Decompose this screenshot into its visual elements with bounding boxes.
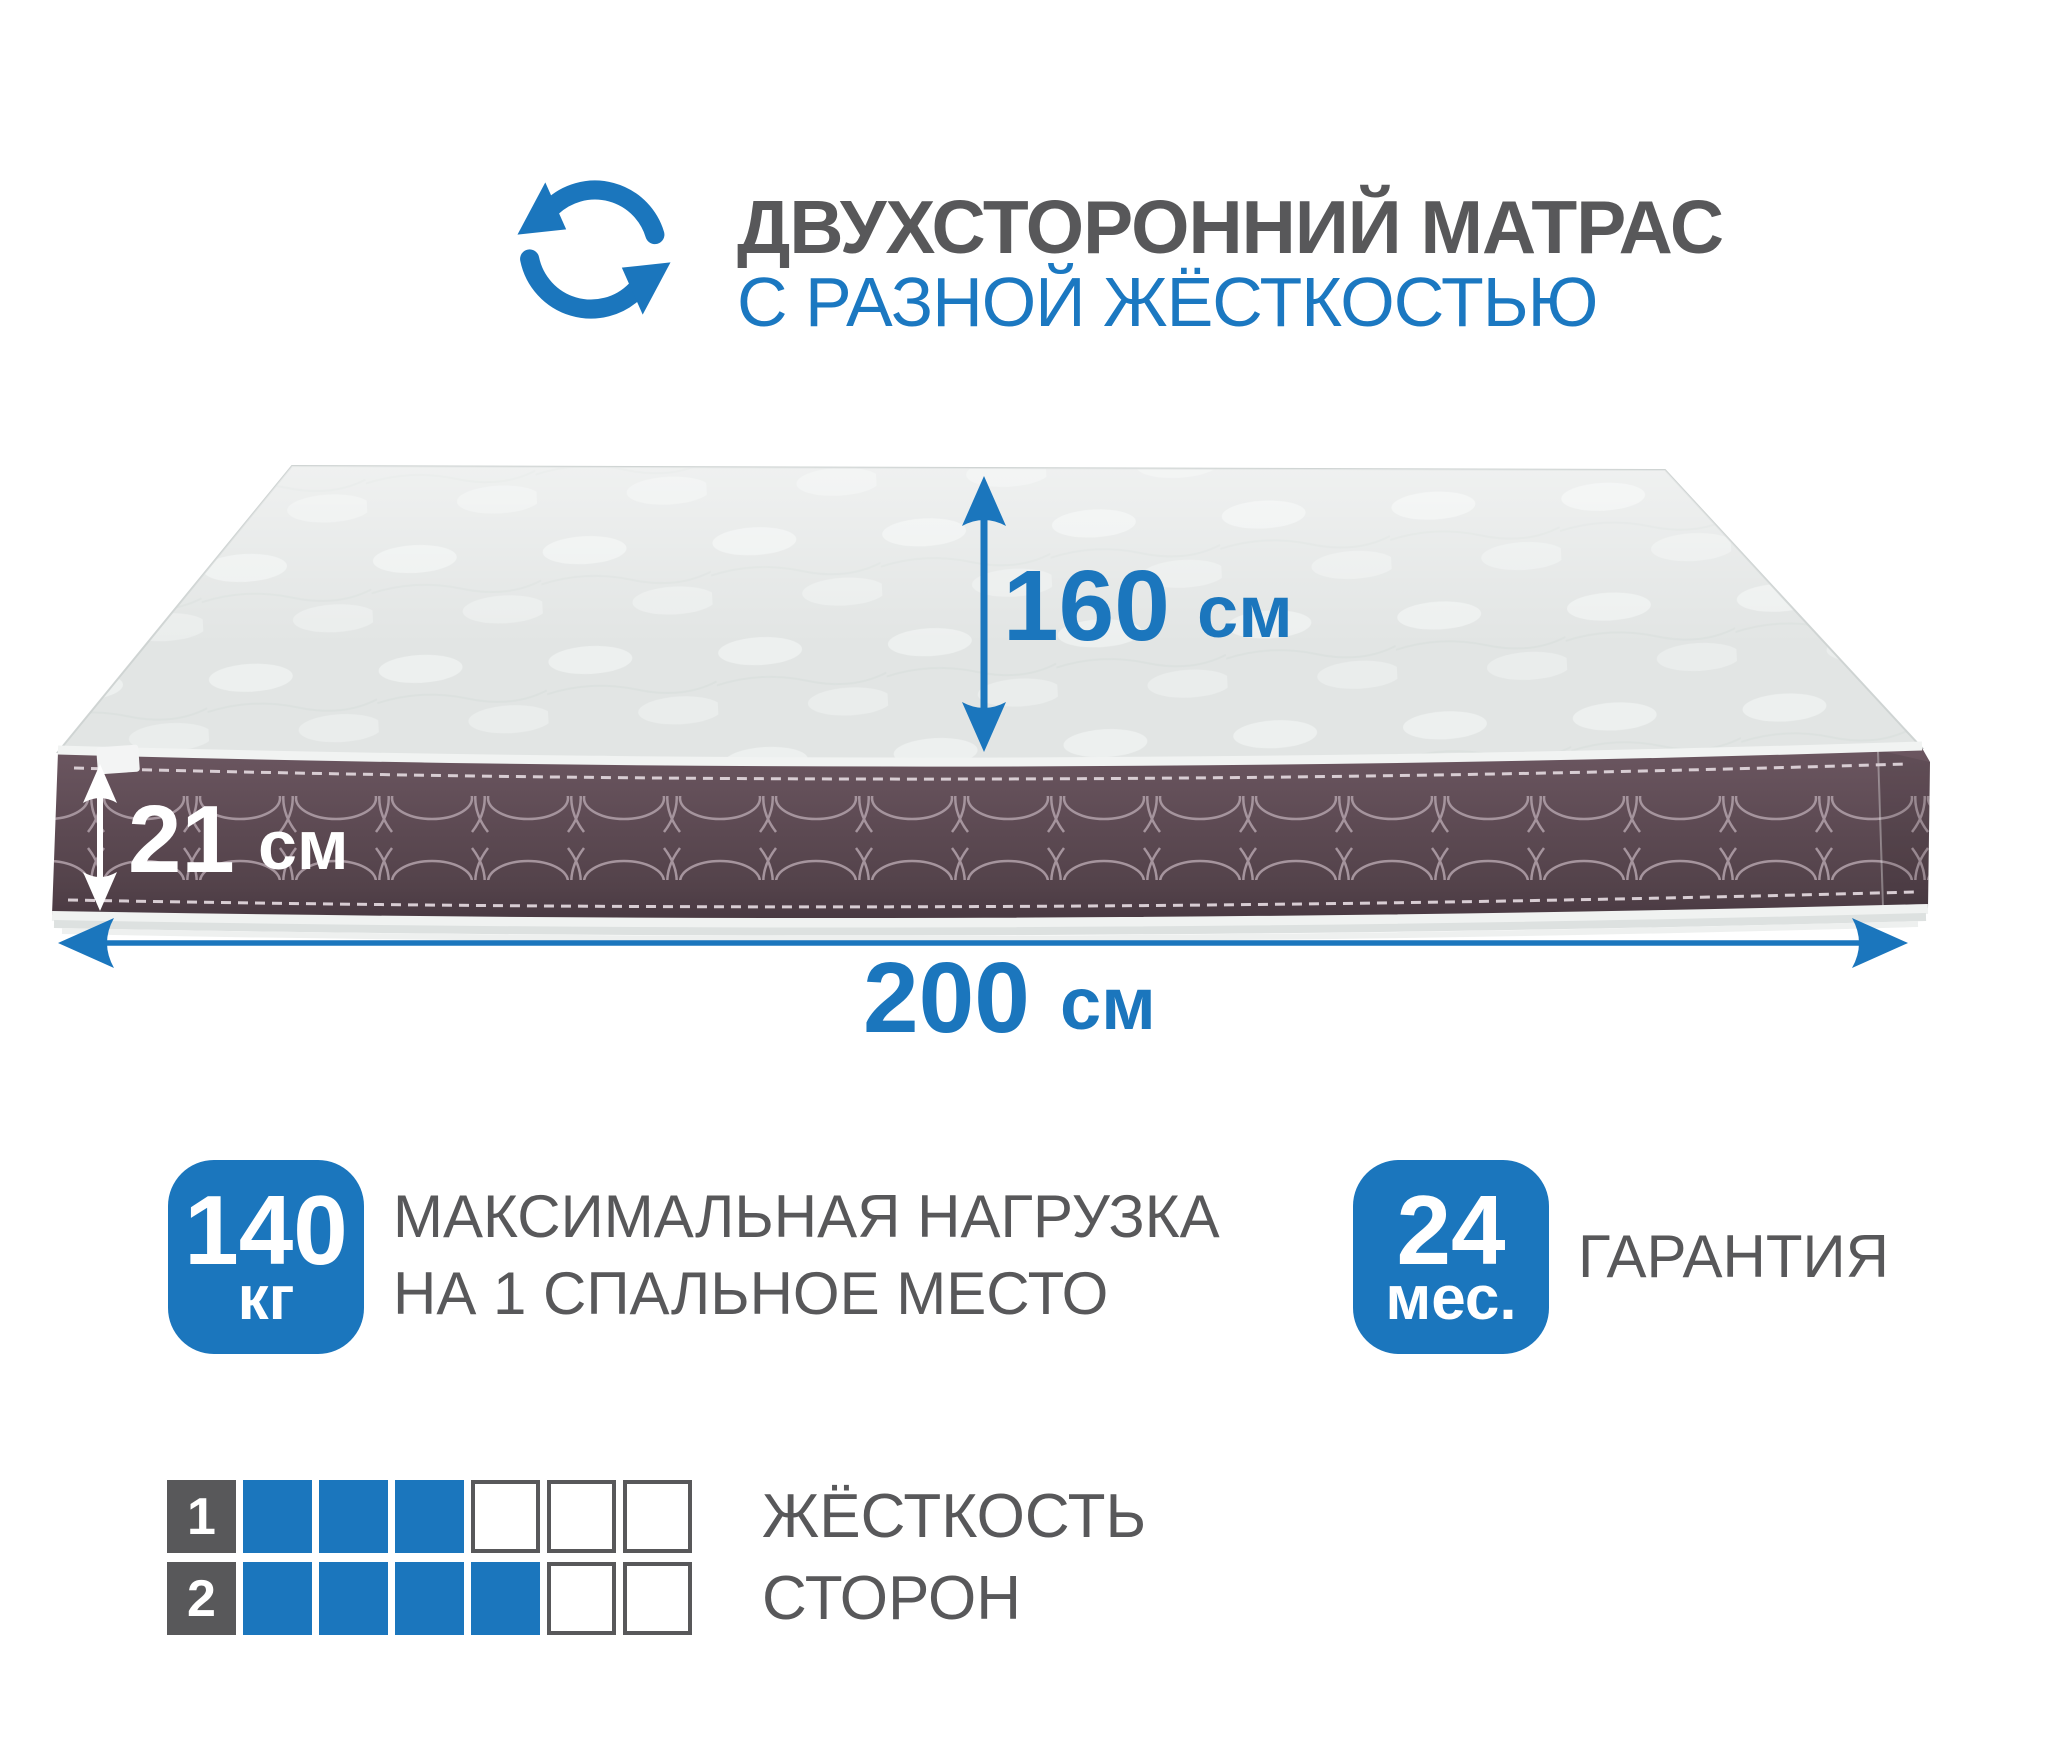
firmness-row-1: 1 <box>167 1480 692 1553</box>
length-unit: см <box>1060 962 1156 1045</box>
page-subtitle: С РАЗНОЙ ЖЁСТКОСТЬЮ <box>737 262 1597 342</box>
firmness-cell-filled <box>243 1562 312 1635</box>
firmness-cell-filled <box>395 1480 464 1553</box>
height-value: 21 <box>128 786 235 893</box>
max-load-unit: кг <box>238 1277 295 1321</box>
length-value: 200 <box>863 942 1030 1054</box>
max-load-label-line1: МАКСИМАЛЬНАЯ НАГРУЗКА <box>393 1178 1220 1255</box>
max-load-value: 140 <box>184 1194 348 1267</box>
firmness-cell-filled <box>395 1562 464 1635</box>
firmness-cell-filled <box>319 1562 388 1635</box>
firmness-cell-empty <box>623 1562 692 1635</box>
rotate-arrows-icon <box>505 172 683 332</box>
firmness-cell-empty <box>547 1562 616 1635</box>
firmness-row-1-cells <box>243 1480 692 1553</box>
firmness-label-line1: ЖЁСТКОСТЬ <box>762 1480 1146 1553</box>
mattress-infographic: 160 см 21 см 200 см ДВУХСТОРОННИЙ МАТРАС… <box>0 0 2048 1757</box>
warranty-label: ГАРАНТИЯ <box>1578 1227 1889 1287</box>
firmness-row-2: 2 <box>167 1562 692 1635</box>
firmness-cell-filled <box>243 1480 312 1553</box>
warranty-unit: мес. <box>1385 1277 1516 1321</box>
warranty-value: 24 <box>1396 1194 1505 1267</box>
width-unit: см <box>1197 570 1293 653</box>
max-load-badge: 140 кг <box>168 1160 364 1354</box>
firmness-cell-filled <box>319 1480 388 1553</box>
width-value: 160 <box>1003 550 1170 662</box>
max-load-label-line2: НА 1 СПАЛЬНОЕ МЕСТО <box>393 1255 1220 1332</box>
page-title: ДВУХСТОРОННИЙ МАТРАС <box>737 184 1723 270</box>
firmness-row-2-cells <box>243 1562 692 1635</box>
firmness-cell-empty <box>471 1480 540 1553</box>
warranty-badge: 24 мес. <box>1353 1160 1549 1354</box>
firmness-cell-empty <box>547 1480 616 1553</box>
max-load-label: МАКСИМАЛЬНАЯ НАГРУЗКА НА 1 СПАЛЬНОЕ МЕСТ… <box>393 1178 1220 1332</box>
height-unit: см <box>258 806 349 884</box>
firmness-cell-filled <box>471 1562 540 1635</box>
firmness-label-line2: СТОРОН <box>762 1562 1021 1635</box>
mattress-tag <box>96 745 140 775</box>
firmness-row-2-label: 2 <box>167 1562 236 1635</box>
firmness-row-1-label: 1 <box>167 1480 236 1553</box>
firmness-cell-empty <box>623 1480 692 1553</box>
